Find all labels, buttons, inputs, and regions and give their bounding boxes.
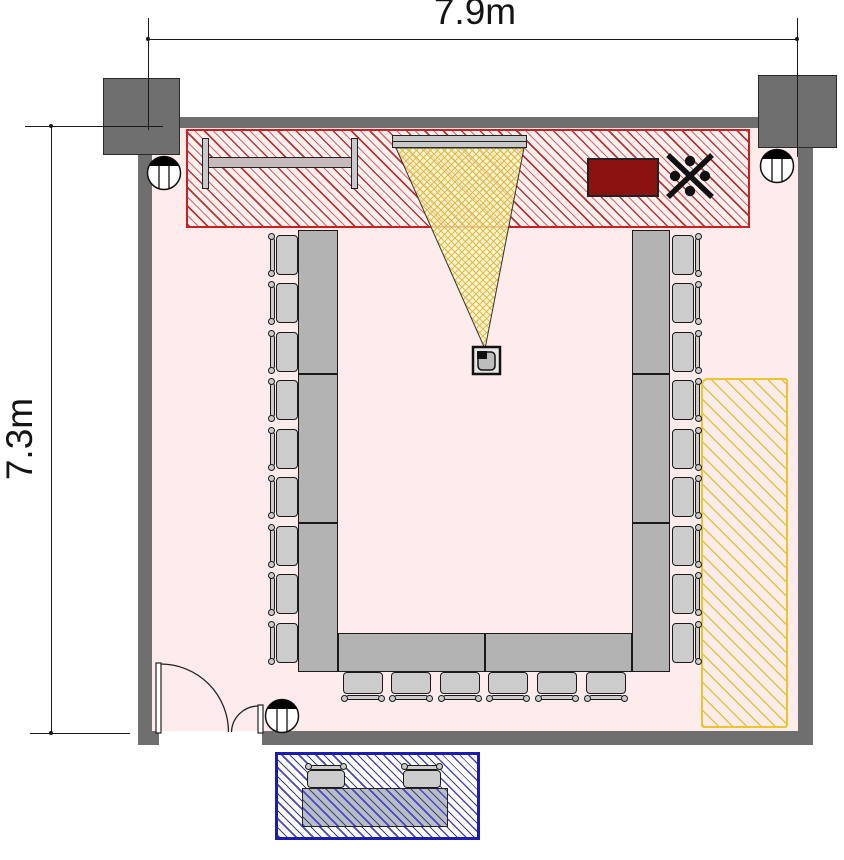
- extension-line-left-bottom: [30, 733, 130, 734]
- extension-line-top-left: [148, 18, 149, 130]
- chair-back: [305, 763, 312, 770]
- dimension-tick: [49, 731, 53, 735]
- dimension-width-label: 7.9m: [400, 0, 550, 33]
- dimension-line-top: [148, 39, 797, 40]
- dimension-tick: [49, 124, 53, 128]
- outside-furniture: [0, 0, 844, 860]
- extension-line-left-top: [25, 126, 163, 127]
- chair-seat: [403, 770, 441, 788]
- chair-back: [340, 763, 347, 770]
- dimension-tick: [146, 37, 150, 41]
- dimension-height-label: 7.3m: [0, 389, 41, 489]
- chair-back: [401, 763, 408, 770]
- dimension-tick: [795, 37, 799, 41]
- chair-seat: [307, 770, 345, 788]
- floor-plan: 7.9m 7.3m: [0, 0, 844, 860]
- chair-back: [436, 763, 443, 770]
- dimension-line-left: [51, 126, 52, 733]
- stool: [403, 765, 443, 795]
- stool: [307, 765, 347, 795]
